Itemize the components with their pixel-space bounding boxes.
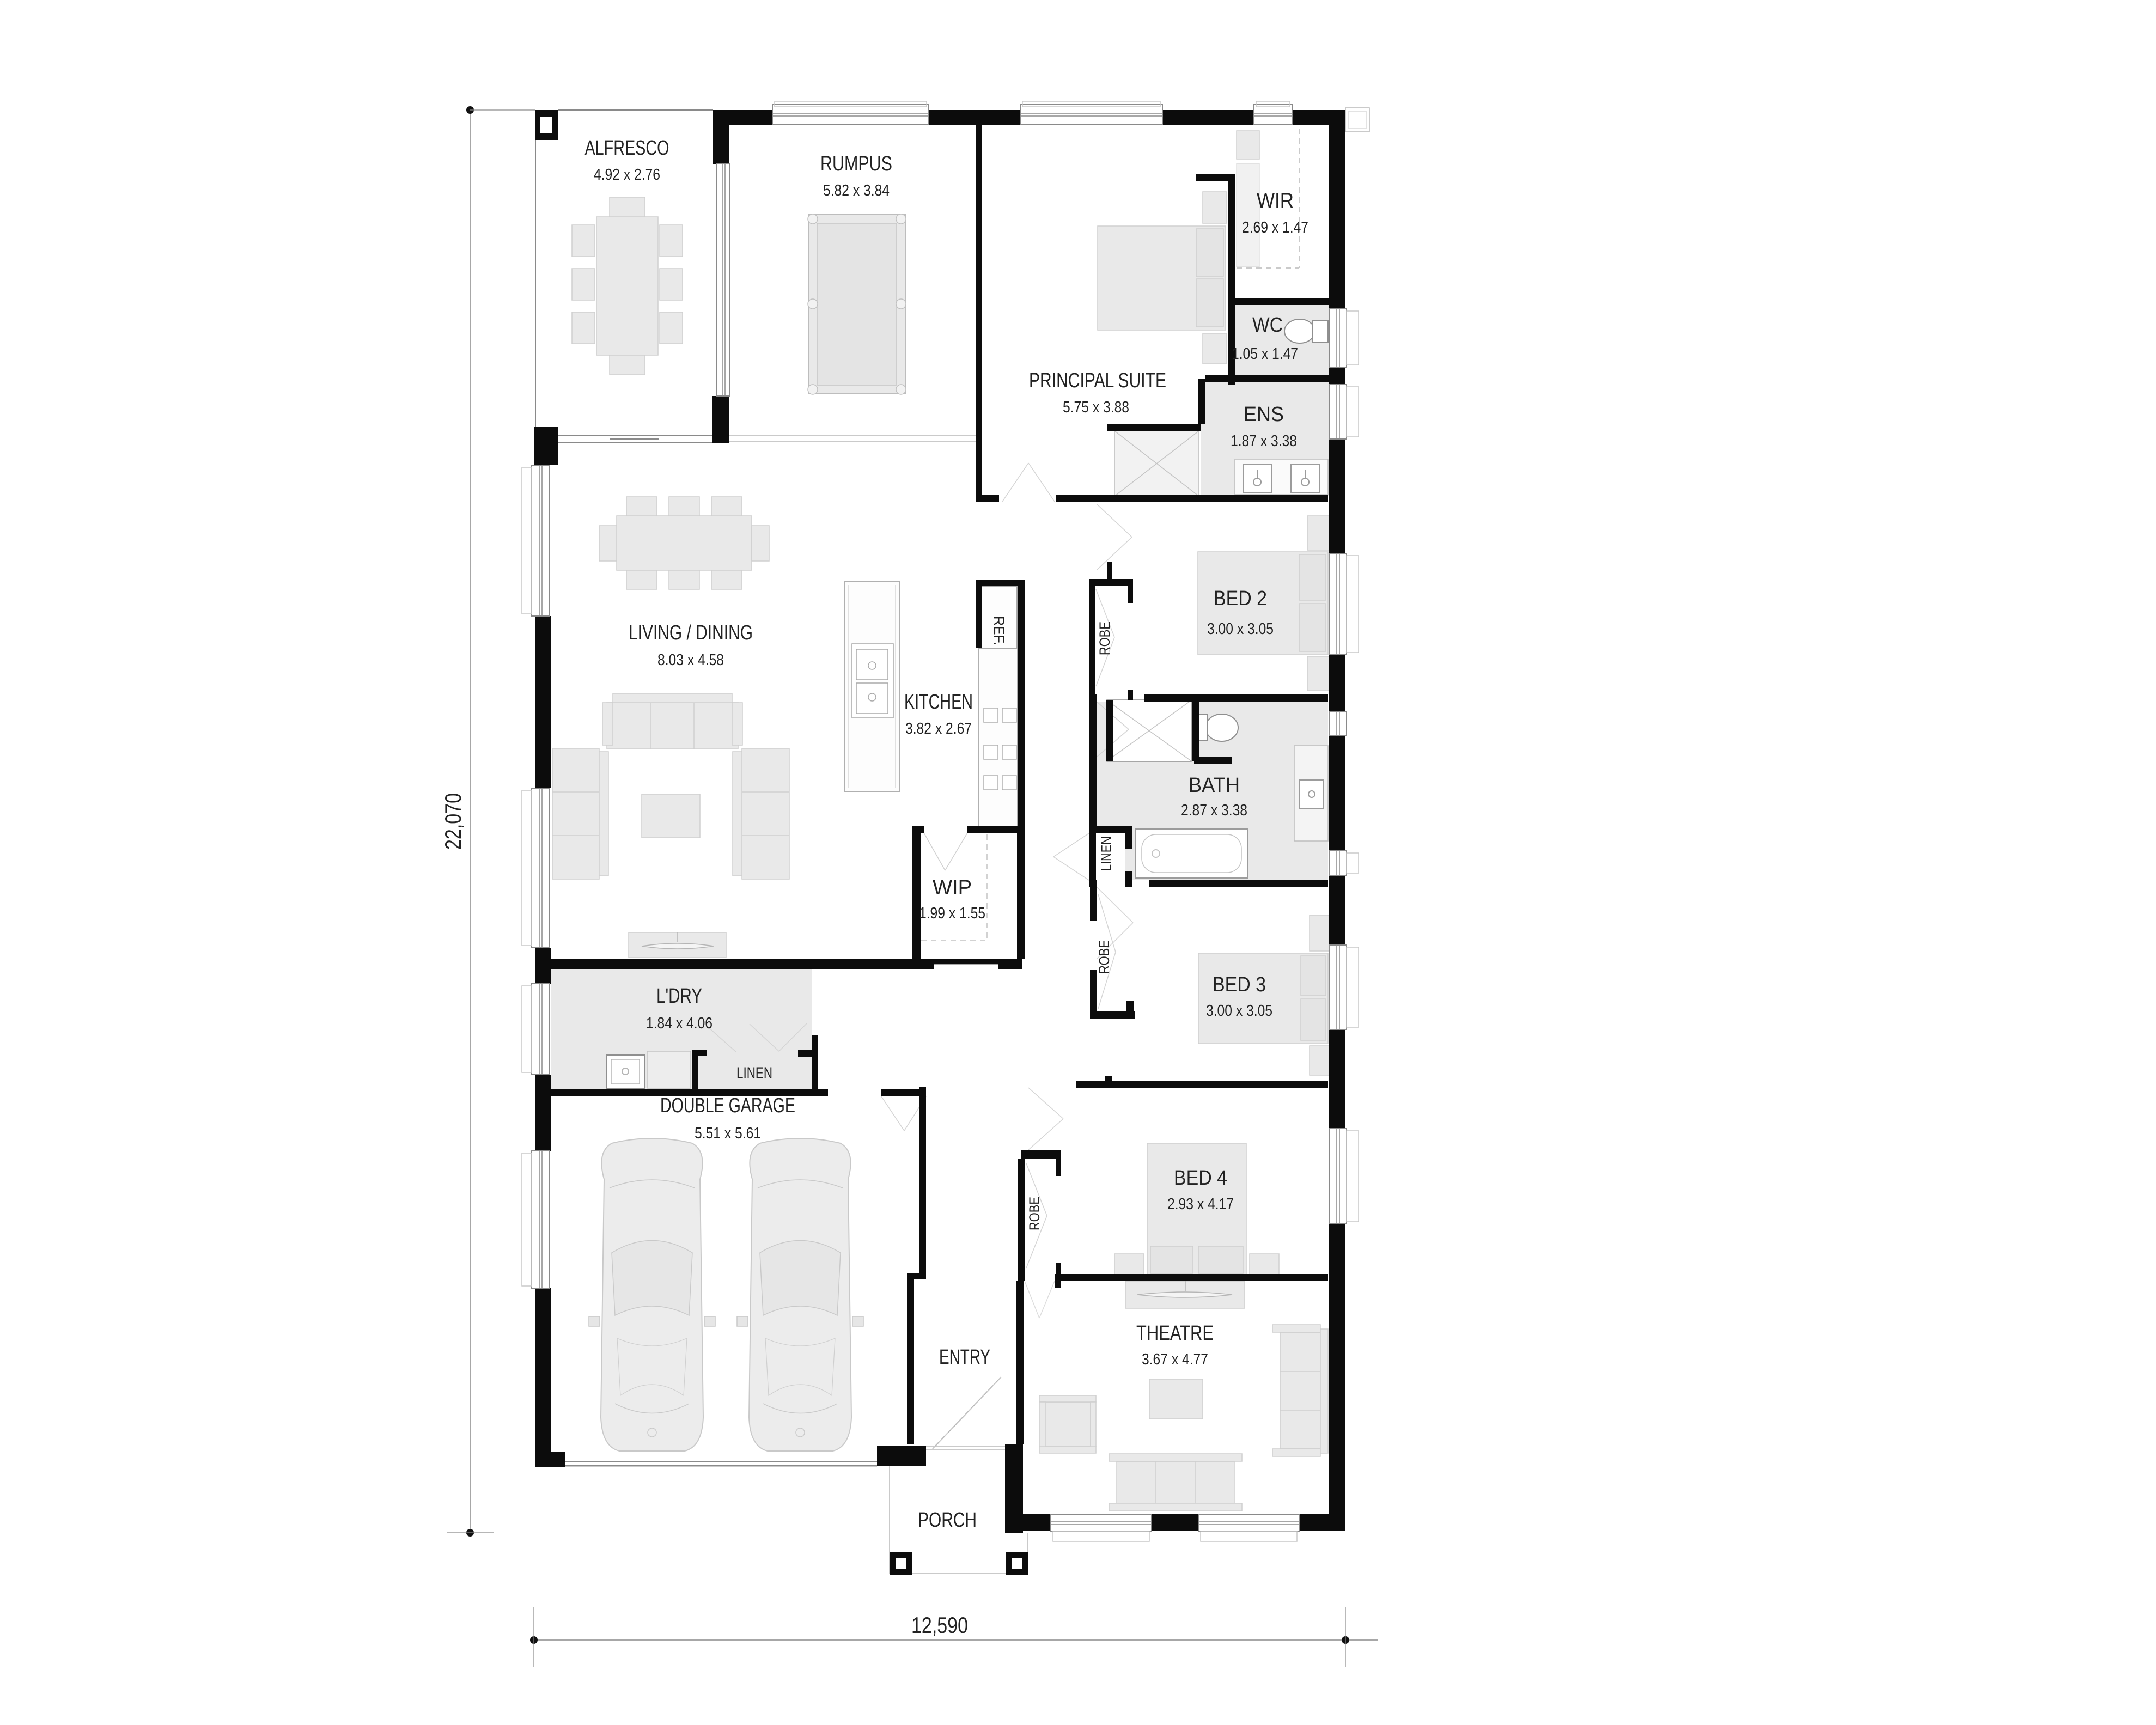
svg-text:4.92 x 2.76: 4.92 x 2.76	[594, 166, 660, 184]
svg-text:5.82 x 3.84: 5.82 x 3.84	[823, 182, 890, 199]
svg-text:PRINCIPAL SUITE: PRINCIPAL SUITE	[1029, 369, 1166, 392]
svg-text:8.03 x 4.58: 8.03 x 4.58	[657, 651, 724, 669]
svg-text:BED 4: BED 4	[1174, 1167, 1227, 1190]
svg-text:BATH: BATH	[1189, 774, 1240, 797]
svg-text:WIP: WIP	[933, 876, 972, 899]
svg-text:LINEN: LINEN	[736, 1064, 772, 1082]
svg-text:RUMPUS: RUMPUS	[820, 153, 892, 175]
svg-text:ROBE: ROBE	[1096, 940, 1112, 974]
svg-text:WC: WC	[1252, 314, 1283, 337]
svg-text:WIR: WIR	[1257, 190, 1294, 212]
svg-text:3.00 x 3.05: 3.00 x 3.05	[1207, 620, 1274, 638]
svg-text:PORCH: PORCH	[918, 1509, 977, 1532]
svg-text:1.99 x 1.55: 1.99 x 1.55	[919, 905, 985, 922]
svg-text:ROBE: ROBE	[1097, 621, 1113, 655]
svg-text:ENS: ENS	[1244, 403, 1284, 426]
svg-text:5.51 x 5.61: 5.51 x 5.61	[695, 1125, 761, 1142]
svg-text:LINEN: LINEN	[1098, 836, 1114, 871]
svg-text:3.00 x 3.05: 3.00 x 3.05	[1206, 1002, 1272, 1020]
svg-text:LIVING / DINING: LIVING / DINING	[629, 621, 753, 644]
svg-text:KITCHEN: KITCHEN	[904, 691, 973, 714]
svg-text:ALFRESCO: ALFRESCO	[585, 137, 669, 160]
svg-text:3.82 x 2.67: 3.82 x 2.67	[905, 720, 972, 737]
svg-text:1.05 x 1.47: 1.05 x 1.47	[1232, 345, 1298, 363]
svg-text:2.69 x 1.47: 2.69 x 1.47	[1242, 219, 1308, 236]
svg-text:DOUBLE GARAGE: DOUBLE GARAGE	[660, 1094, 795, 1117]
svg-text:THEATRE: THEATRE	[1136, 1322, 1214, 1345]
svg-text:1.84 x 4.06: 1.84 x 4.06	[646, 1015, 712, 1032]
svg-text:1.87 x 3.38: 1.87 x 3.38	[1231, 432, 1297, 450]
svg-text:BED 3: BED 3	[1213, 973, 1266, 996]
svg-text:ROBE: ROBE	[1026, 1197, 1043, 1230]
svg-text:2.93 x 4.17: 2.93 x 4.17	[1167, 1196, 1234, 1213]
svg-text:3.67 x 4.77: 3.67 x 4.77	[1142, 1351, 1208, 1368]
svg-text:BED 2: BED 2	[1214, 587, 1267, 610]
svg-text:5.75 x 3.88: 5.75 x 3.88	[1063, 399, 1129, 416]
svg-text:ENTRY: ENTRY	[939, 1346, 990, 1369]
svg-text:22,070: 22,070	[440, 793, 466, 850]
svg-text:12,590: 12,590	[911, 1612, 968, 1638]
svg-text:L'DRY: L'DRY	[656, 985, 702, 1008]
svg-text:REF.: REF.	[991, 616, 1007, 645]
svg-text:2.87 x 3.38: 2.87 x 3.38	[1181, 802, 1247, 819]
